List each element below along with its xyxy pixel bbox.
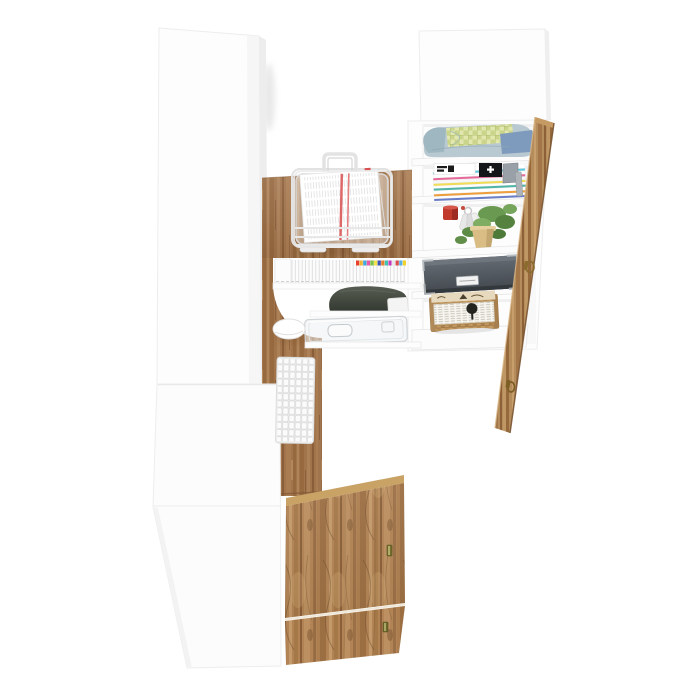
- acrylic-tray: [305, 316, 408, 345]
- wardrobe-cabinet: [157, 28, 275, 384]
- storage-box: [423, 255, 519, 294]
- under-desk-base: [305, 342, 421, 348]
- media-row: [274, 259, 406, 283]
- magazine-stack: [433, 163, 526, 201]
- computer-mouse: [273, 319, 306, 343]
- tray-foot: [352, 247, 379, 252]
- product-render: [0, 0, 700, 700]
- keyboard: [275, 357, 314, 444]
- handle-slot: [328, 324, 352, 337]
- tray-foot: [300, 247, 326, 252]
- papers: [300, 167, 387, 243]
- black-magazine: [479, 163, 502, 177]
- folded-clothes: [423, 124, 534, 157]
- wicker-basket: [429, 290, 499, 335]
- bottom-cabinet-doors: [285, 475, 405, 665]
- door-knob-lower: [383, 622, 388, 632]
- bookend: [275, 259, 291, 283]
- bookcase-top-slab: [419, 29, 547, 124]
- magazine-cover: [434, 164, 475, 175]
- document-tray: [292, 154, 392, 255]
- red-mug: [443, 206, 458, 221]
- wardrobe-tall-panel: [157, 28, 261, 384]
- wardrobe-lower-panel: [153, 384, 281, 668]
- newspaper-liner: [434, 301, 495, 324]
- dark-pouch: [329, 286, 408, 314]
- wardrobe-panel-shading: [247, 36, 261, 384]
- door-knob-upper: [387, 545, 392, 556]
